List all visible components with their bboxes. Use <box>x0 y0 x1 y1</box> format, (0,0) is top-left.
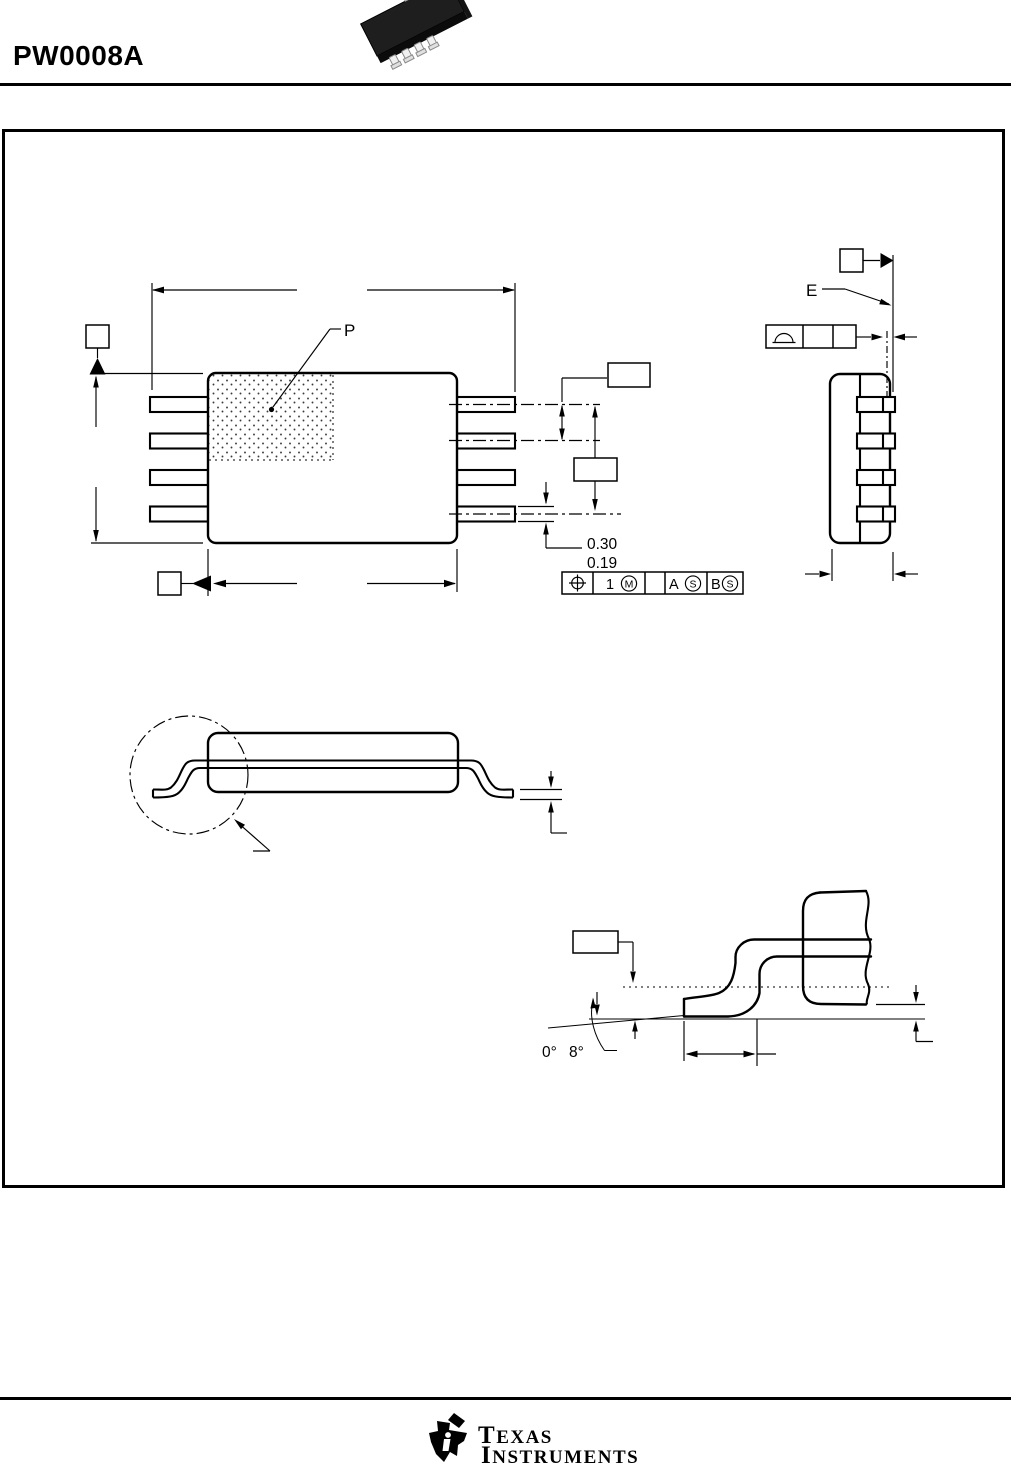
break-line <box>866 891 871 1005</box>
angle-max-label: 8° <box>569 1044 584 1061</box>
brand-instruments-initial: I <box>481 1442 492 1468</box>
pin <box>457 470 515 485</box>
seating-plane-angle <box>548 992 925 1051</box>
footer-rule <box>0 1397 1011 1400</box>
drawing-canvas: P <box>0 0 1011 1468</box>
e-label-leader <box>822 289 892 306</box>
fcf-tolerance-modifier: M <box>625 579 634 591</box>
brand-line-instruments: INSTRUMENTS <box>481 1442 639 1468</box>
left-pins <box>150 397 208 522</box>
datum-e-label: E <box>806 281 817 300</box>
dim-body-length <box>158 549 457 596</box>
detail-leader <box>234 819 270 851</box>
dimension-callout-box <box>573 931 618 953</box>
package-drawing-page: PW0008A <box>0 0 1011 1468</box>
dimension-callout-box <box>574 458 617 481</box>
dim-lead-pitch <box>559 363 650 441</box>
dimension-callout-box <box>608 363 650 387</box>
brand-instruments-rest: NSTRUMENTS <box>492 1447 639 1468</box>
right-gullwing-lead <box>458 761 513 798</box>
pin <box>857 470 895 485</box>
datum-callout-box <box>86 325 109 348</box>
fcf-datum-b: B <box>711 577 721 593</box>
position-symbol-icon <box>569 575 586 592</box>
datum-triangle <box>192 576 211 592</box>
dim-standoff <box>876 985 933 1042</box>
pin <box>150 470 208 485</box>
end-view: E <box>766 249 918 581</box>
datum-triangle <box>881 253 894 268</box>
pin <box>857 434 895 449</box>
ti-logo-icon <box>428 1412 474 1464</box>
package-body-side-view <box>208 733 458 792</box>
dim-lead-span <box>574 406 617 512</box>
side-view <box>130 716 567 851</box>
datum-triangle <box>90 358 106 375</box>
pin <box>150 507 208 522</box>
datum-callout-box <box>840 249 863 272</box>
datum-callout-box <box>158 572 181 595</box>
dim-end-view-width <box>805 549 918 581</box>
pin <box>150 434 208 449</box>
fcf-tolerance: 1 <box>606 577 614 593</box>
fcf-datum-a: A <box>669 577 679 593</box>
gauge-plane-callout <box>573 931 636 983</box>
angle-min-label: 0° <box>542 1044 557 1061</box>
profile-feature-control-frame <box>766 325 917 348</box>
dim-foot-length <box>684 1019 776 1066</box>
left-gullwing-lead <box>153 761 208 798</box>
lead-width-min: 0.19 <box>587 555 617 572</box>
index-area <box>210 375 334 460</box>
top-view: P <box>86 283 743 596</box>
dim-lead-thickness <box>520 771 567 833</box>
right-pins <box>457 397 515 522</box>
dim-lead-width <box>518 482 582 548</box>
index-area-label: P <box>344 321 355 340</box>
fcf-datum-b-modifier: S <box>726 579 733 591</box>
profile-surface-symbol-icon <box>773 334 796 343</box>
fcf-datum-a-modifier: S <box>689 579 696 591</box>
pin <box>857 507 895 522</box>
lead-detail-view: 0° 8° <box>542 891 933 1066</box>
pin <box>150 397 208 412</box>
position-feature-control-frame: 1 M A S B S <box>562 572 743 594</box>
lead-width-max: 0.30 <box>587 536 618 553</box>
body-with-break <box>803 891 870 1005</box>
pin <box>857 397 895 412</box>
